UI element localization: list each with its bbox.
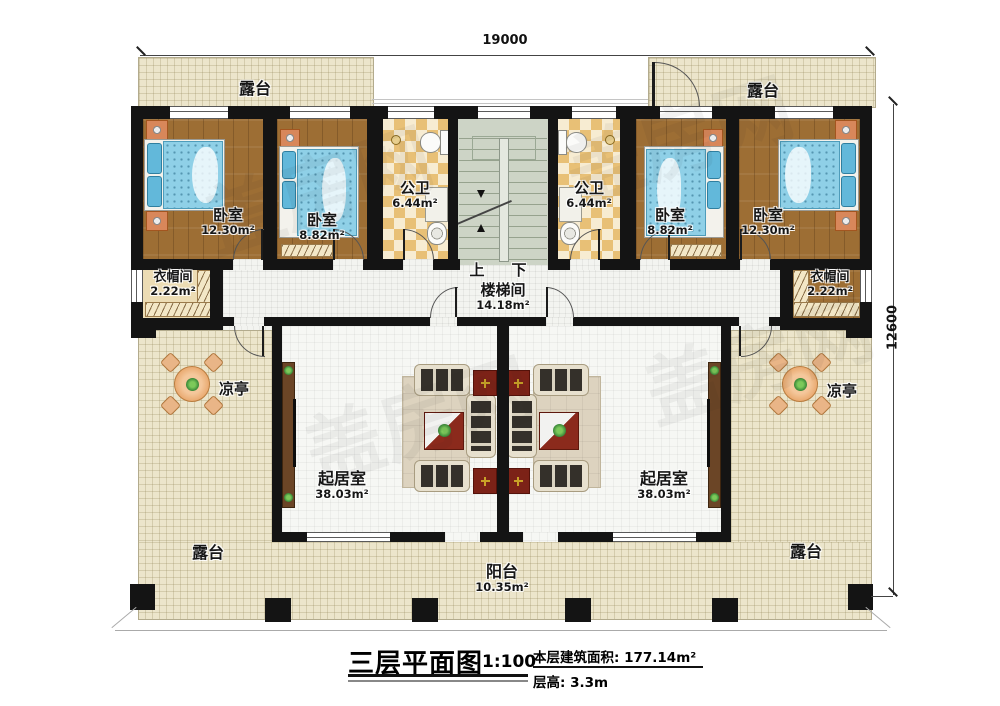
room-name: 卧室 — [620, 207, 720, 224]
room-label-pavilion-left: 凉亭 — [209, 381, 259, 398]
room-label-bath-left: 公卫 6.44m² — [365, 180, 465, 210]
room-name: 公卫 — [539, 180, 639, 197]
plant — [284, 366, 293, 375]
info-divider — [533, 666, 703, 668]
room-label-cloak-right: 衣帽间 2.22m² — [790, 271, 870, 298]
window — [613, 532, 696, 542]
room-area: 12.30m² — [718, 224, 818, 237]
room-area: 14.18m² — [453, 299, 553, 312]
pillar-corner — [130, 584, 155, 610]
wall-center — [497, 326, 509, 542]
room-area: 2.22m² — [133, 285, 213, 298]
shower-head-icon — [391, 135, 401, 145]
dimension-line-top — [140, 55, 871, 56]
direction: 下 — [509, 262, 529, 279]
shower-head-icon — [605, 135, 615, 145]
nightstand — [280, 129, 300, 147]
dimension-extension — [871, 596, 893, 597]
dimension-height: 12600 — [886, 296, 901, 360]
nightstand — [146, 211, 168, 231]
room-name: 露台 — [158, 544, 258, 562]
room-label-bedroom-left-small: 卧室 8.82m² — [272, 212, 372, 242]
eaves-line — [111, 607, 136, 628]
room-name: 卧室 — [178, 207, 278, 224]
nightstand — [146, 120, 168, 140]
room-name: 露台 — [205, 80, 305, 98]
nightstand — [703, 129, 723, 147]
bed-sheet — [192, 147, 218, 203]
window — [572, 106, 616, 119]
pillar — [412, 598, 438, 622]
room-area: 8.82m² — [272, 229, 372, 242]
door-gap — [739, 317, 769, 326]
stair-down-label: 下 — [509, 262, 529, 279]
sofa — [414, 460, 470, 492]
plan-scale: 1:100 — [482, 652, 536, 672]
door-gap — [403, 259, 433, 270]
door-gap — [233, 259, 263, 270]
sofa — [533, 364, 589, 396]
room-name: 凉亭 — [209, 381, 259, 398]
door-gap — [570, 259, 600, 270]
room-name: 衣帽间 — [133, 271, 213, 285]
room-name: 露台 — [756, 543, 856, 561]
room-area: 6.44m² — [365, 197, 465, 210]
wardrobe — [145, 302, 215, 317]
door-leaf — [598, 229, 600, 260]
window — [307, 532, 390, 542]
pillar-corner — [848, 584, 873, 610]
room-label-stairwell: 楼梯间 14.18m² — [453, 282, 553, 312]
wall-corner — [846, 318, 872, 338]
terrace-edge — [138, 619, 872, 620]
wardrobe — [793, 302, 860, 317]
room-name: 公卫 — [365, 180, 465, 197]
terrace-edge — [871, 330, 872, 620]
roof-rail — [372, 99, 648, 100]
wall-hall-bottom — [223, 317, 780, 326]
room-label-terrace-top-left: 露台 — [205, 80, 305, 98]
pillow — [841, 176, 856, 207]
room-label-terrace-bottom-right: 露台 — [756, 543, 856, 561]
sofa-cushions — [512, 401, 532, 451]
room-name: 卧室 — [718, 207, 818, 224]
sofa — [507, 394, 537, 458]
room-area: 38.03m² — [614, 488, 714, 501]
pillar — [712, 598, 738, 622]
pillow — [841, 143, 856, 174]
door-gap — [333, 259, 363, 270]
plant — [186, 378, 199, 391]
room-name: 起居室 — [614, 470, 714, 488]
plan-floor-height: 层高: 3.3m — [533, 671, 608, 691]
plant — [438, 424, 451, 437]
title-underline-2 — [348, 680, 528, 682]
rug — [506, 370, 530, 396]
plant — [794, 378, 807, 391]
room-area: 2.22m² — [790, 285, 870, 298]
roof-rail — [372, 103, 648, 104]
room-name: 衣帽间 — [790, 271, 870, 285]
rug — [506, 468, 530, 494]
toilet — [566, 132, 587, 153]
room-name: 起居室 — [292, 470, 392, 488]
window — [478, 106, 530, 119]
rug — [473, 370, 497, 396]
floor-plan: 露台 露台 卧室 12.30m² 卧室 8.82m² 公卫 6.44m² 公卫 … — [0, 0, 1000, 706]
room-label-bedroom-right-large: 卧室 12.30m² — [718, 207, 818, 237]
pillar — [565, 598, 591, 622]
sofa-cushions — [421, 465, 463, 487]
room-label-balcony: 阳台 10.35m² — [452, 563, 552, 594]
room-label-bedroom-right-small: 卧室 8.82m² — [620, 207, 720, 237]
sofa-cushions — [421, 369, 463, 391]
window — [775, 106, 833, 119]
pillow — [147, 143, 162, 174]
sofa-cushions — [540, 369, 582, 391]
wardrobe — [281, 244, 333, 257]
pillow — [282, 181, 296, 209]
stair-arrow-up — [477, 224, 485, 232]
sofa — [466, 394, 496, 458]
terrace-edge — [138, 330, 139, 620]
wall-living-right — [721, 317, 731, 542]
door-gap — [430, 317, 457, 326]
sink — [427, 222, 447, 245]
door-gap — [546, 317, 573, 326]
room-label-bedroom-left-large: 卧室 12.30m² — [178, 207, 278, 237]
door-leaf — [739, 326, 741, 356]
room-label-pavilion-right: 凉亭 — [817, 383, 867, 400]
room-label-terrace-bottom-left: 露台 — [158, 544, 258, 562]
room-label-living-left: 起居室 38.03m² — [292, 470, 392, 501]
plant — [553, 424, 566, 437]
bed-sheet — [785, 147, 811, 203]
window — [290, 106, 350, 119]
room-name: 露台 — [713, 82, 813, 100]
dimension-width: 19000 — [455, 33, 555, 48]
wall-living-left — [272, 317, 282, 542]
nightstand — [835, 120, 857, 140]
door-gap — [445, 532, 480, 542]
pillow — [282, 151, 296, 179]
room-label-living-right: 起居室 38.03m² — [614, 470, 714, 501]
wall-corner — [131, 318, 156, 338]
window — [170, 106, 228, 119]
wall-inner — [263, 106, 277, 270]
room-area: 12.30m² — [178, 224, 278, 237]
room-name: 凉亭 — [817, 383, 867, 400]
room-label-terrace-top-right: 露台 — [713, 82, 813, 100]
door-leaf — [262, 326, 264, 356]
plan-area-info: 本层建筑面积: 177.14m² — [533, 646, 696, 666]
sofa — [414, 364, 470, 396]
direction: 上 — [467, 262, 487, 279]
tv — [293, 399, 296, 467]
door-gap — [234, 317, 264, 326]
door-gap — [523, 532, 558, 542]
toilet — [420, 132, 441, 153]
window — [388, 106, 434, 119]
stair-arrow-down — [477, 190, 485, 198]
window — [660, 106, 712, 119]
pillow — [147, 176, 162, 207]
door-gap — [740, 259, 770, 270]
stair-stringer — [499, 138, 509, 262]
sofa-cushions — [540, 465, 582, 487]
wall-inner — [726, 106, 739, 270]
sofa — [533, 460, 589, 492]
pillow — [707, 181, 721, 209]
room-area: 10.35m² — [452, 581, 552, 594]
tv — [707, 399, 710, 467]
door-leaf — [403, 229, 405, 260]
door-gap — [640, 259, 670, 270]
room-area: 38.03m² — [292, 488, 392, 501]
room-name: 卧室 — [272, 212, 372, 229]
title-underline — [348, 674, 528, 677]
room-area: 8.82m² — [620, 224, 720, 237]
eaves-line — [115, 630, 887, 631]
door-leaf — [652, 62, 655, 106]
pillar — [265, 598, 291, 622]
sofa-cushions — [471, 401, 491, 451]
room-label-cloak-left: 衣帽间 2.22m² — [133, 271, 213, 298]
room-name: 楼梯间 — [453, 282, 553, 299]
wardrobe — [670, 244, 722, 257]
pillow — [707, 151, 721, 179]
nightstand — [835, 211, 857, 231]
stair-up-label: 上 — [467, 262, 487, 279]
rug — [473, 468, 497, 494]
plant — [710, 366, 719, 375]
room-name: 阳台 — [452, 563, 552, 581]
room-label-bath-right: 公卫 6.44m² — [539, 180, 639, 210]
